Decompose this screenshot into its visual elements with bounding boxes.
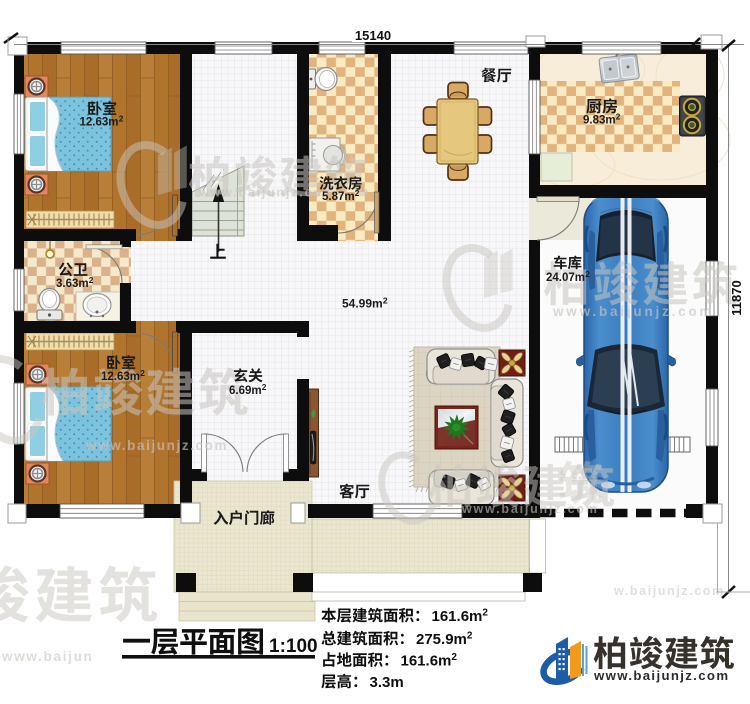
svg-text:54.99m: 54.99m (342, 297, 383, 311)
svg-text:275.9m: 275.9m (416, 631, 467, 648)
svg-text:3.3m: 3.3m (370, 674, 404, 691)
svg-text:2: 2 (355, 188, 360, 198)
svg-text:161.6m: 161.6m (432, 608, 483, 625)
svg-text:www.baijunjz.com: www.baijunjz.com (552, 304, 714, 319)
svg-text:w.baijunjz.com: w.baijunjz.com (613, 584, 725, 598)
svg-text:2: 2 (585, 269, 590, 279)
svg-text:www.baijunjz.com: www.baijunjz.com (85, 438, 228, 453)
svg-text:2: 2 (616, 112, 621, 122)
svg-text:2: 2 (262, 382, 267, 392)
svg-text:9.83m: 9.83m (583, 115, 616, 127)
svg-text:www.baijunjz.com: www.baijunjz.com (593, 668, 729, 683)
svg-text:2: 2 (451, 652, 457, 663)
svg-text:www.baijun: www.baijun (1, 649, 94, 664)
svg-text:2: 2 (467, 631, 473, 642)
svg-text:1:100: 1:100 (269, 636, 318, 657)
svg-text:3.63m: 3.63m (56, 278, 89, 290)
svg-text:12.63m: 12.63m (101, 371, 140, 383)
svg-text:www.baijunjz.com: www.baijunjz.com (198, 186, 336, 200)
svg-text:2: 2 (119, 114, 124, 124)
svg-text:2: 2 (383, 295, 388, 305)
svg-text:2: 2 (140, 368, 145, 378)
svg-text:2: 2 (89, 275, 94, 285)
svg-text:161.6m: 161.6m (401, 653, 452, 670)
svg-text:12.63m: 12.63m (80, 117, 119, 129)
svg-text:11870: 11870 (729, 280, 744, 315)
svg-text:5.87m: 5.87m (322, 191, 355, 203)
svg-text:2: 2 (482, 608, 488, 619)
svg-text:15140: 15140 (355, 28, 391, 43)
svg-text:24.07m: 24.07m (546, 272, 585, 284)
svg-text:6.69m: 6.69m (229, 385, 262, 397)
svg-text:www.baijunjz.com: www.baijunjz.com (461, 502, 599, 516)
